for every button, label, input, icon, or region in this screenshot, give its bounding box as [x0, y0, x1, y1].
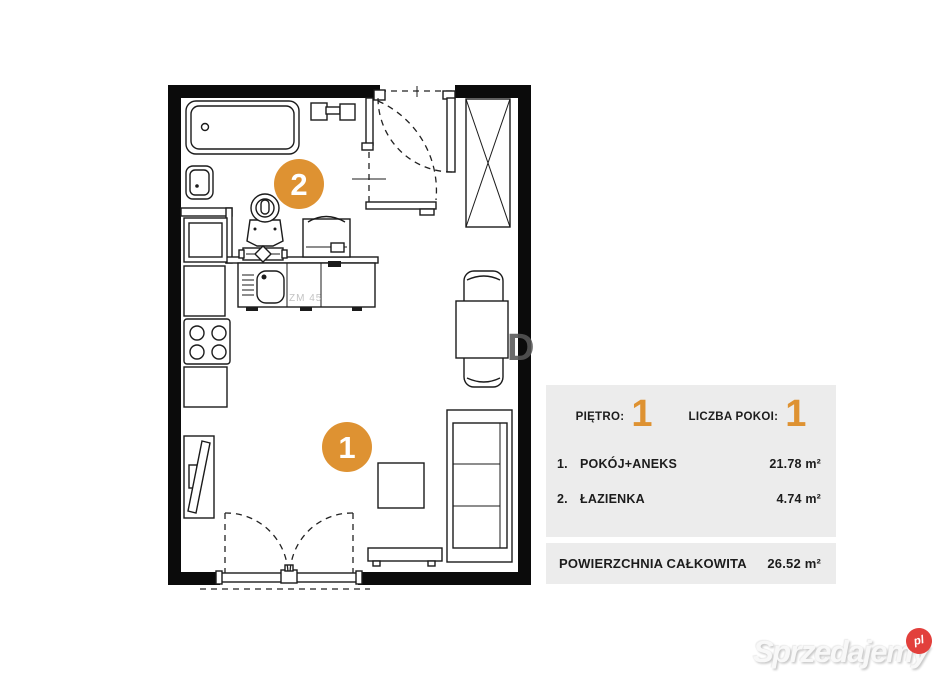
total-area-panel: POWIERZCHNIA CAŁKOWITA 26.52 m²	[546, 543, 836, 584]
floor-group: PIĘTRO: 1	[576, 398, 653, 436]
bench	[368, 548, 442, 566]
room-index: 2.	[557, 492, 580, 506]
floor-plan-page: ZM 45	[0, 0, 951, 689]
svg-text:2: 2	[290, 167, 307, 202]
wardrobe	[466, 99, 510, 227]
room-area: 21.78 m²	[769, 457, 821, 471]
kitchen-cabinet	[184, 218, 227, 262]
balcony-door	[200, 513, 370, 589]
room-label-living: 1	[322, 422, 372, 472]
bathroom-door	[352, 98, 436, 202]
rooms-label: LICZBA POKOI:	[689, 411, 779, 423]
room-list: 1. POKÓJ+ANEKS 21.78 m² 2. ŁAZIENKA 4.74…	[546, 457, 836, 506]
toilet	[247, 194, 283, 246]
brand-wordmark: Sprzedajemy	[753, 634, 928, 669]
room-index: 1.	[557, 457, 580, 471]
sprzedajemy-watermark: Sprzedajemy pl	[753, 636, 951, 676]
dining-table	[456, 301, 508, 358]
coffee-table	[378, 463, 424, 508]
bathtub	[186, 101, 299, 154]
room-name: POKÓJ+ANEKS	[580, 457, 677, 471]
kitchen-counter-low	[184, 367, 227, 407]
background-watermark-fragment: D	[507, 327, 534, 369]
rooms-group: LICZBA POKOI: 1	[689, 398, 807, 436]
floor-value: 1	[631, 395, 652, 433]
bathroom-sink	[186, 166, 213, 199]
room-list-row: 1. POKÓJ+ANEKS 21.78 m²	[557, 457, 821, 471]
room-area: 4.74 m²	[777, 492, 821, 506]
total-area-value: 26.52 m²	[767, 556, 821, 571]
room-label-bathroom: 2	[274, 159, 324, 209]
wall-fixture	[311, 103, 355, 120]
room-list-row: 2. ŁAZIENKA 4.74 m²	[557, 492, 821, 506]
fridge	[184, 266, 225, 316]
total-area-label: POWIERZCHNIA CAŁKOWITA	[559, 556, 747, 571]
info-panel: PIĘTRO: 1 LICZBA POKOI: 1 1. POKÓJ+ANEKS…	[546, 385, 836, 537]
tv-stand	[184, 436, 214, 518]
floor-label: PIĘTRO:	[576, 411, 625, 423]
floor-plan: ZM 45	[0, 0, 951, 689]
sofa	[447, 410, 512, 562]
washing-machine	[303, 217, 350, 258]
svg-text:1: 1	[338, 430, 355, 465]
stove	[184, 319, 230, 364]
dishwasher-label: ZM 45	[289, 293, 322, 304]
rooms-value: 1	[785, 395, 806, 433]
info-panel-header: PIĘTRO: 1 LICZBA POKOI: 1	[546, 385, 836, 436]
room-name: ŁAZIENKA	[580, 492, 645, 506]
